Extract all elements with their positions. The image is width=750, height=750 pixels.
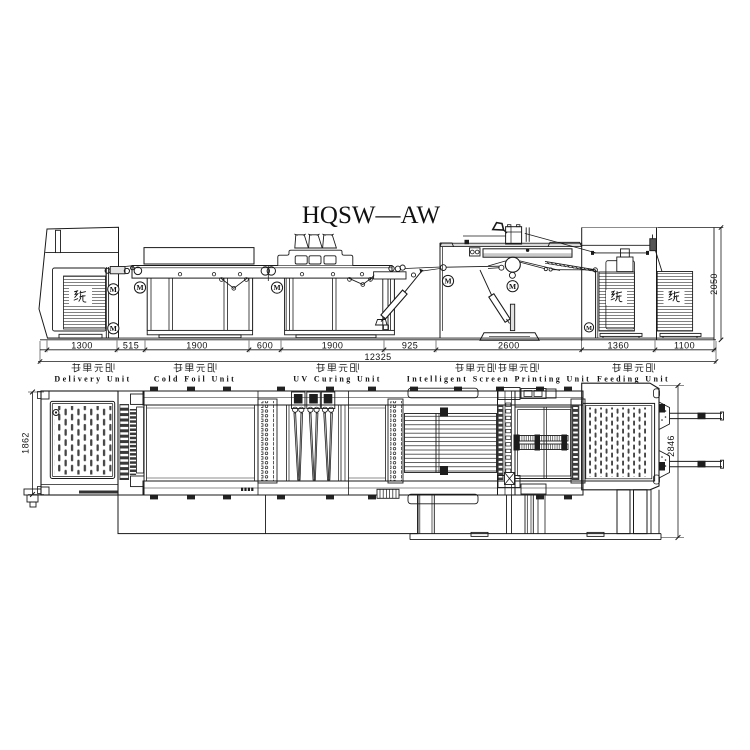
svg-text:12325: 12325 [364,352,391,362]
svg-text:M: M [273,283,280,292]
svg-text:1900: 1900 [186,340,208,350]
svg-text:515: 515 [123,340,139,350]
svg-text:M: M [509,282,516,291]
svg-text:1300: 1300 [71,340,93,350]
svg-text:925: 925 [402,340,418,350]
svg-text:UV Curing Unit: UV Curing Unit [293,375,382,384]
svg-text:M: M [136,283,143,292]
svg-text:2846: 2846 [666,435,676,457]
svg-text:M: M [586,325,592,332]
svg-text:HQSW—AW: HQSW—AW [302,202,441,229]
svg-text:Cold Foil Unit: Cold Foil Unit [154,375,237,384]
svg-text:Feeding Unit: Feeding Unit [597,375,670,384]
svg-text:1360: 1360 [608,340,630,350]
svg-text:1100: 1100 [674,340,695,350]
svg-text:600: 600 [257,340,273,350]
svg-text:Delivery Unit: Delivery Unit [54,375,131,384]
svg-text:2600: 2600 [498,340,520,350]
svg-text:M: M [444,277,451,286]
svg-text:1900: 1900 [322,340,344,350]
svg-text:1862: 1862 [21,432,31,454]
svg-text:M: M [110,324,117,333]
svg-text:M: M [110,285,117,294]
svg-text:2050: 2050 [709,273,719,295]
svg-text:Intelligent Screen Printing Un: Intelligent Screen Printing Unit [407,375,591,384]
